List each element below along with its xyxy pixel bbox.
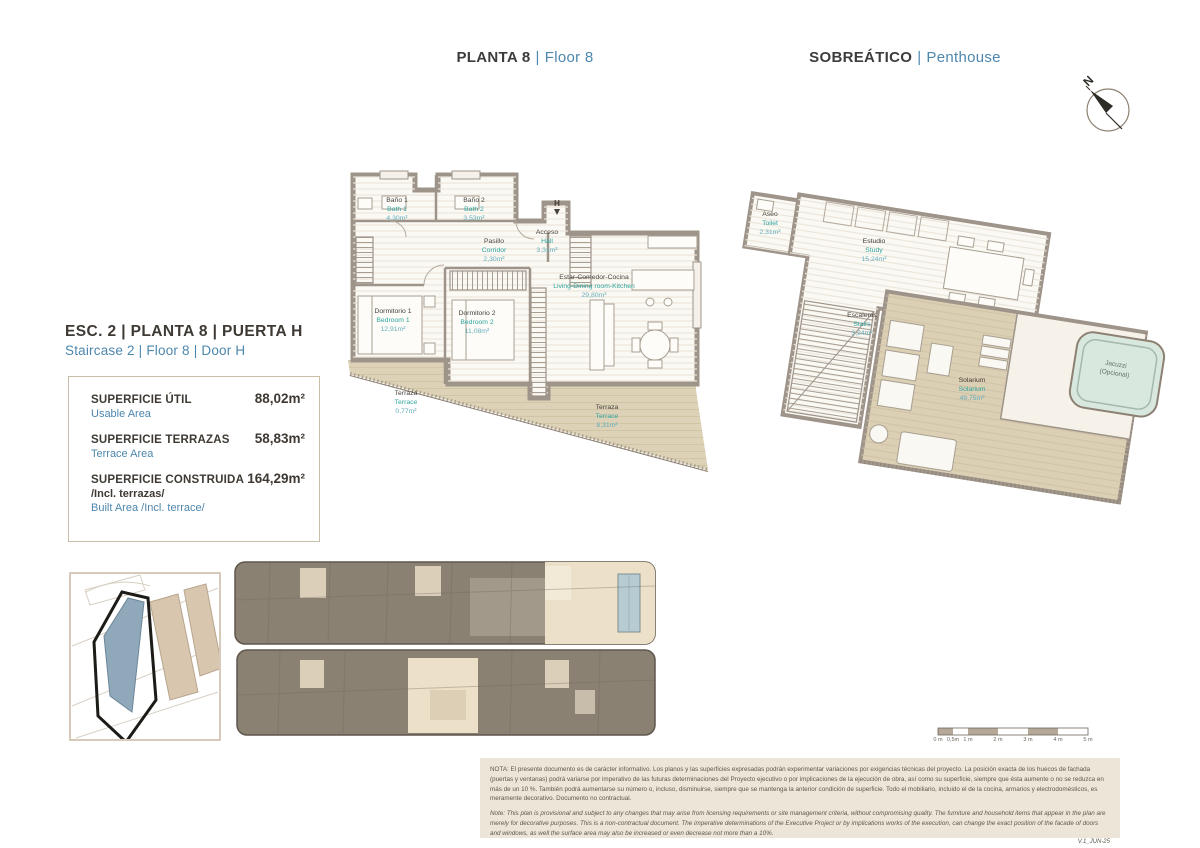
unit-title-en: Staircase 2 | Floor 8 | Door H — [65, 343, 245, 358]
room-label-bano-1: Baño 1 Bath 1 4,30m² — [386, 197, 408, 223]
header-floor8-en: Floor 8 — [545, 49, 594, 66]
room-name-es: Pasillo — [482, 238, 507, 247]
room-area: 49,75m² — [959, 394, 986, 403]
room-name-es: Dormitorio 2 — [458, 310, 495, 319]
area-label-en: Terrace Area — [91, 448, 305, 460]
header-floor8: PLANTA 8|Floor 8 — [400, 48, 650, 68]
scale-tick-05m: 0,5m — [947, 737, 959, 743]
room-area: 29,80m² — [553, 291, 635, 300]
header-penthouse-en: Penthouse — [926, 49, 1000, 66]
header-floor8-es: PLANTA 8 — [456, 49, 530, 66]
room-area: 8,31m² — [596, 421, 619, 430]
room-name-en: Bath 1 — [386, 206, 408, 215]
room-name-es: Estar-Comedor-Cocina — [553, 274, 635, 283]
room-name-en: Toilet — [759, 220, 780, 229]
room-name-en: Terrace — [596, 413, 619, 422]
room-name-es: Baño 2 — [463, 197, 485, 206]
room-name-en: Bedroom 2 — [458, 319, 495, 328]
room-name-es: Solarium — [959, 377, 986, 386]
area-label-es2: /Incl. terrazas/ — [91, 488, 305, 500]
keyplan-strip-penthouse — [235, 562, 655, 644]
area-value: 164,29m² — [247, 471, 305, 486]
area-summary-box: SUPERFICIE ÚTIL 88,02m² Usable Area SUPE… — [68, 376, 320, 542]
room-label-estudio: Estudio Study 15,24m² — [862, 238, 887, 264]
room-name-en: Stairs — [847, 321, 877, 330]
room-name-es: Terraza — [596, 404, 619, 413]
room-area: 2,31m² — [759, 228, 780, 237]
room-area: 11,08m² — [458, 327, 495, 336]
area-row-usable: SUPERFICIE ÚTIL 88,02m² Usable Area — [91, 391, 305, 420]
area-label-en: Usable Area — [91, 408, 305, 420]
room-name-es: Estudio — [862, 238, 887, 247]
room-area: 3,31m² — [536, 246, 558, 255]
room-name-en: Terrace — [395, 399, 418, 408]
area-label-es: SUPERFICIE CONSTRUIDA — [91, 474, 244, 486]
room-label-bano-2: Baño 2 Bath 2 3,53m² — [463, 197, 485, 223]
room-label-dormitorio-1: Dormitorio 1 Bedroom 1 12,91m² — [374, 308, 411, 334]
area-value: 88,02m² — [255, 391, 305, 406]
room-name-es: Escaleras — [847, 312, 877, 321]
room-name-es: Dormitorio 1 — [374, 308, 411, 317]
header-penthouse-es: SOBREÁTICO — [809, 49, 912, 66]
room-name-es: Acceso — [536, 229, 558, 238]
penthouse-plan-drawing — [714, 187, 1180, 505]
scale-tick-1m: 1 m — [963, 737, 972, 743]
room-label-escaleras: Escaleras Stairs 3,24m² — [847, 312, 877, 338]
disclaimer-box: NOTA: El presente documento es de caráct… — [480, 758, 1120, 838]
room-name-es: Baño 1 — [386, 197, 408, 206]
entrance-marker: H — [554, 199, 560, 215]
keyplan-strip-floor8 — [237, 650, 655, 735]
room-name-en: Solarium — [959, 386, 986, 395]
room-name-es: Terraza — [395, 390, 418, 399]
room-label-aseo: Aseo Toilet 2,31m² — [759, 211, 780, 237]
room-name-en: Hall — [536, 238, 558, 247]
area-value: 58,83m² — [255, 431, 305, 446]
room-name-es: Aseo — [759, 211, 780, 220]
room-name-en: Living-Dining room-Kitchen — [553, 283, 635, 292]
room-label-acceso: Acceso Hall 3,31m² — [536, 229, 558, 255]
room-label-pasillo: Pasillo Corridor 2,30m² — [482, 238, 507, 264]
header-penthouse: SOBREÁTICO|Penthouse — [790, 48, 1020, 68]
document-version: V.1_JUN-25 — [490, 839, 1110, 845]
scale-tick-4m: 4 m — [1053, 737, 1062, 743]
room-label-terraza-1: Terraza Terrace 0,77m² — [395, 390, 418, 416]
room-label-terraza-2: Terraza Terrace 8,31m² — [596, 404, 619, 430]
area-label-es: SUPERFICIE ÚTIL — [91, 394, 192, 406]
room-name-en: Study — [862, 247, 887, 256]
scale-tick-2m: 2 m — [993, 737, 1002, 743]
room-name-en: Bath 2 — [463, 206, 485, 215]
room-label-solarium: Solarium Solarium 49,75m² — [959, 377, 986, 403]
room-area: 15,24m² — [862, 255, 887, 264]
disclaimer-en: Note: This plan is provisional and subje… — [490, 809, 1110, 838]
area-row-built: SUPERFICIE CONSTRUIDA 164,29m² /Incl. te… — [91, 471, 305, 514]
disclaimer-es: NOTA: El presente documento es de caráct… — [490, 765, 1110, 804]
scale-tick-3m: 3 m — [1023, 737, 1032, 743]
room-name-en: Corridor — [482, 247, 507, 256]
room-name-en: Bedroom 1 — [374, 317, 411, 326]
scale-tick-5m: 5 m — [1083, 737, 1092, 743]
room-area: 4,30m² — [386, 214, 408, 223]
scale-tick-0m: 0 m — [933, 737, 942, 743]
room-area: 3,24m² — [847, 329, 877, 338]
entrance-label: H — [554, 199, 560, 208]
entrance-arrow-icon — [554, 209, 560, 215]
room-area: 2,30m² — [482, 255, 507, 264]
area-label-es: SUPERFICIE TERRAZAS — [91, 434, 230, 446]
room-area: 3,53m² — [463, 214, 485, 223]
room-label-dormitorio-2: Dormitorio 2 Bedroom 2 11,08m² — [458, 310, 495, 336]
room-label-living: Estar-Comedor-Cocina Living-Dining room-… — [553, 274, 635, 300]
room-area: 0,77m² — [395, 407, 418, 416]
compass-icon — [1086, 86, 1129, 131]
header-separator: | — [912, 49, 926, 66]
header-separator: | — [531, 49, 545, 66]
site-map — [70, 573, 222, 742]
room-area: 12,91m² — [374, 325, 411, 334]
area-label-en: Built Area /Incl. terrace/ — [91, 502, 305, 514]
plan-sheet: PLANTA 8|Floor 8 SOBREÁTICO|Penthouse N … — [0, 0, 1200, 848]
unit-title: ESC. 2 | PLANTA 8 | PUERTA H — [65, 323, 303, 341]
area-row-terrace: SUPERFICIE TERRAZAS 58,83m² Terrace Area — [91, 431, 305, 460]
scale-bar — [938, 728, 1088, 735]
